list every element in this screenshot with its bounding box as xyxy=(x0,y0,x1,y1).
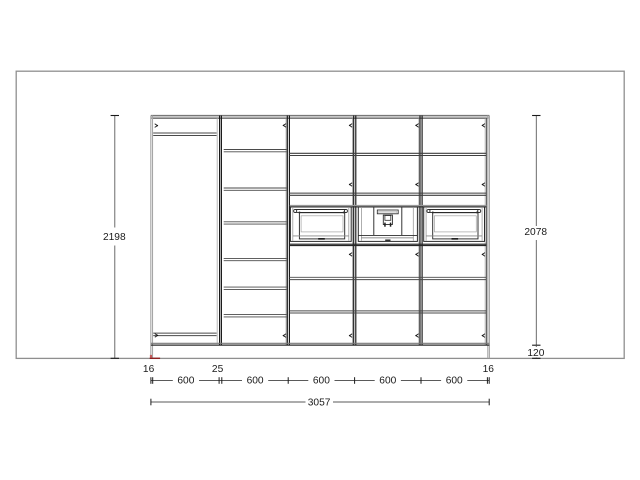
svg-text:16: 16 xyxy=(483,364,495,375)
svg-text:600: 600 xyxy=(446,376,463,387)
svg-text:600: 600 xyxy=(379,376,396,387)
svg-text:3057: 3057 xyxy=(308,398,331,409)
svg-text:25: 25 xyxy=(212,364,224,375)
svg-text:600: 600 xyxy=(247,376,264,387)
svg-text:2078: 2078 xyxy=(524,227,547,238)
svg-text:600: 600 xyxy=(177,376,194,387)
svg-text:2198: 2198 xyxy=(103,232,126,243)
svg-text:120: 120 xyxy=(527,348,544,359)
svg-text:16: 16 xyxy=(143,364,155,375)
svg-text:600: 600 xyxy=(313,376,330,387)
